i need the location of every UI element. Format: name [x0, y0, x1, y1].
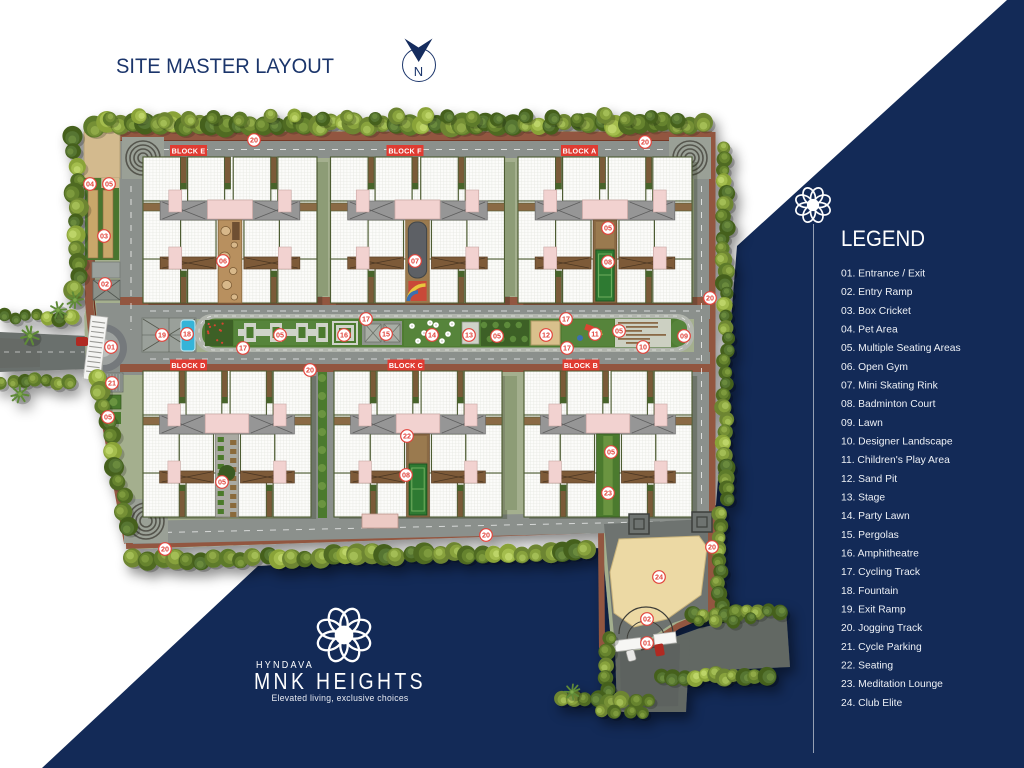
svg-text:21: 21	[108, 379, 116, 388]
svg-text:08: 08	[402, 471, 410, 480]
svg-text:MNK HEIGHTS: MNK HEIGHTS	[254, 668, 426, 694]
svg-text:23: 23	[604, 489, 612, 498]
svg-text:LEGEND: LEGEND	[841, 226, 925, 251]
svg-text:20: 20	[306, 366, 314, 375]
svg-text:BLOCK A: BLOCK A	[563, 147, 597, 156]
svg-text:12. Sand Pit: 12. Sand Pit	[841, 474, 897, 485]
svg-text:05: 05	[493, 332, 501, 341]
svg-text:11. Children's Play Area: 11. Children's Play Area	[841, 455, 950, 466]
svg-text:17. Cycling Track: 17. Cycling Track	[841, 567, 921, 578]
svg-text:02: 02	[101, 280, 109, 289]
svg-text:02: 02	[643, 615, 651, 624]
svg-text:20: 20	[161, 545, 169, 554]
svg-text:Elevated living, exclusive cho: Elevated living, exclusive choices	[272, 693, 409, 704]
svg-text:18. Fountain: 18. Fountain	[841, 586, 899, 597]
svg-text:19: 19	[158, 331, 166, 340]
svg-text:18: 18	[183, 330, 191, 339]
svg-text:BLOCK B: BLOCK B	[564, 361, 598, 370]
svg-text:22. Seating: 22. Seating	[841, 661, 893, 672]
svg-text:05: 05	[105, 180, 113, 189]
svg-text:BLOCK D: BLOCK D	[171, 361, 205, 370]
svg-text:03. Box Cricket: 03. Box Cricket	[841, 306, 911, 317]
svg-text:23. Meditation Lounge: 23. Meditation Lounge	[841, 679, 943, 690]
svg-text:16. Amphitheatre: 16. Amphitheatre	[841, 549, 919, 560]
svg-text:15: 15	[382, 330, 390, 339]
svg-text:20: 20	[641, 138, 649, 147]
svg-text:04. Pet Area: 04. Pet Area	[841, 325, 898, 336]
svg-text:10: 10	[639, 343, 647, 352]
svg-text:24: 24	[655, 573, 663, 582]
svg-text:05: 05	[607, 448, 615, 457]
svg-text:05: 05	[276, 331, 284, 340]
svg-text:06. Open Gym: 06. Open Gym	[841, 362, 908, 373]
svg-text:06: 06	[219, 257, 227, 266]
svg-text:BLOCK C: BLOCK C	[389, 361, 423, 370]
svg-text:09: 09	[680, 332, 688, 341]
svg-text:11: 11	[591, 330, 599, 339]
svg-text:03: 03	[100, 232, 108, 241]
svg-text:17: 17	[563, 344, 571, 353]
svg-text:20: 20	[250, 136, 258, 145]
svg-text:20: 20	[706, 294, 714, 303]
svg-text:17: 17	[562, 315, 570, 324]
svg-text:01: 01	[107, 343, 115, 352]
svg-text:01. Entrance / Exit: 01. Entrance / Exit	[841, 269, 925, 280]
svg-text:17: 17	[239, 344, 247, 353]
svg-text:15. Pergolas: 15. Pergolas	[841, 530, 899, 541]
svg-text:01: 01	[643, 639, 651, 648]
svg-text:BLOCK E: BLOCK E	[172, 147, 206, 156]
svg-text:20: 20	[482, 531, 490, 540]
svg-text:20. Jogging Track: 20. Jogging Track	[841, 623, 923, 634]
svg-text:17: 17	[362, 315, 370, 324]
svg-text:05: 05	[604, 224, 612, 233]
svg-text:BLOCK F: BLOCK F	[388, 147, 422, 156]
svg-text:05: 05	[218, 478, 226, 487]
svg-text:14. Party Lawn: 14. Party Lawn	[841, 511, 910, 522]
svg-text:20: 20	[708, 543, 716, 552]
svg-text:07: 07	[411, 257, 419, 266]
svg-text:05. Multiple Seating Areas: 05. Multiple Seating Areas	[841, 343, 961, 354]
svg-text:08: 08	[604, 258, 612, 267]
svg-text:13: 13	[465, 331, 473, 340]
svg-text:16: 16	[340, 331, 348, 340]
svg-text:08. Badminton Court: 08. Badminton Court	[841, 399, 936, 410]
svg-text:SITE MASTER LAYOUT: SITE MASTER LAYOUT	[116, 54, 334, 78]
svg-text:22: 22	[403, 432, 411, 441]
svg-text:12: 12	[542, 331, 550, 340]
svg-text:05: 05	[104, 413, 112, 422]
svg-text:21. Cycle Parking: 21. Cycle Parking	[841, 642, 922, 653]
svg-text:13. Stage: 13. Stage	[841, 493, 885, 504]
svg-text:N: N	[414, 64, 423, 79]
svg-text:19. Exit Ramp: 19. Exit Ramp	[841, 605, 906, 616]
svg-text:05: 05	[615, 327, 623, 336]
svg-text:24. Club Elite: 24. Club Elite	[841, 698, 903, 709]
svg-text:02. Entry Ramp: 02. Entry Ramp	[841, 287, 913, 298]
svg-text:09. Lawn: 09. Lawn	[841, 418, 883, 429]
svg-text:07. Mini Skating Rink: 07. Mini Skating Rink	[841, 381, 939, 392]
svg-text:10. Designer Landscape: 10. Designer Landscape	[841, 437, 953, 448]
svg-text:14: 14	[428, 331, 436, 340]
svg-text:04: 04	[86, 180, 94, 189]
